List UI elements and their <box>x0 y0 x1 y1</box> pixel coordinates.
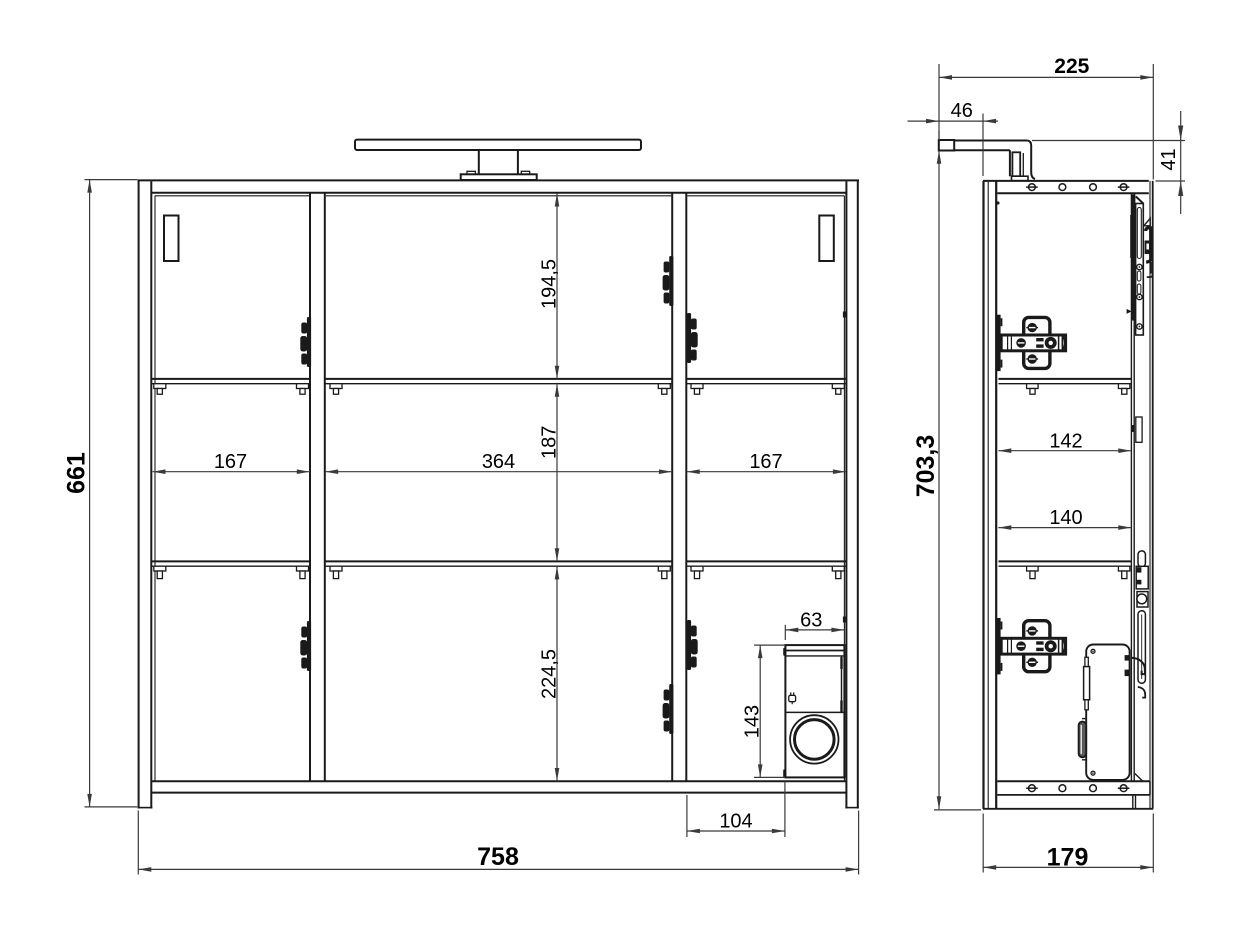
svg-text:142: 142 <box>1049 430 1082 452</box>
svg-text:179: 179 <box>1047 843 1089 871</box>
svg-text:143: 143 <box>742 705 764 738</box>
svg-text:140: 140 <box>1049 507 1082 529</box>
svg-text:104: 104 <box>719 811 752 833</box>
svg-text:41: 41 <box>1158 148 1180 170</box>
svg-text:661: 661 <box>63 452 91 494</box>
svg-text:167: 167 <box>749 451 782 473</box>
svg-text:224,5: 224,5 <box>538 649 560 699</box>
svg-text:167: 167 <box>214 451 247 473</box>
svg-text:63: 63 <box>800 609 822 631</box>
svg-text:225: 225 <box>1054 55 1089 78</box>
svg-text:46: 46 <box>951 100 973 122</box>
svg-text:194,5: 194,5 <box>538 259 560 309</box>
svg-text:703,3: 703,3 <box>912 435 940 498</box>
svg-text:187: 187 <box>538 426 560 459</box>
svg-text:364: 364 <box>482 451 515 473</box>
svg-text:758: 758 <box>477 843 519 871</box>
